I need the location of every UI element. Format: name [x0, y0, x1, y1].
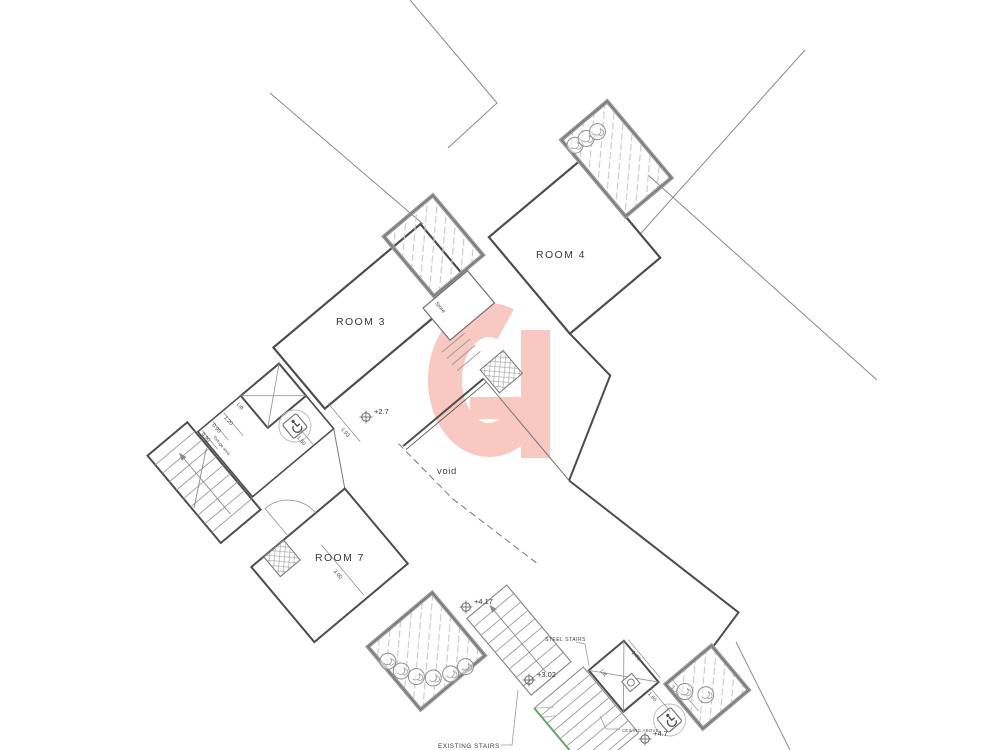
g-logo-stem [521, 330, 550, 458]
site-boundary-line [410, 0, 497, 148]
leader-line [501, 690, 518, 745]
room-4-label: ROOM 4 [536, 249, 586, 261]
dim-lift-d2: 1.65 [646, 691, 657, 703]
site-boundary-line [270, 93, 423, 224]
void-label: void [437, 466, 457, 477]
ceiling-above-note: CEILING ABOVE [622, 728, 659, 733]
floor-plan-drawing: Lift Refuge area 0.90 0.90 1.20 1.50 1.9… [0, 0, 1000, 750]
level-stair-top: +4.17 [474, 597, 493, 606]
terrace-lower-left [366, 593, 487, 714]
site-boundary-line [648, 175, 877, 380]
steel-stairs-note: STEEL STAIRS [545, 637, 586, 643]
room-3-label: ROOM 3 [336, 316, 386, 328]
floor-plan-page: Lift Refuge area 0.90 0.90 1.20 1.50 1.9… [0, 0, 1000, 750]
level-marker [460, 601, 473, 614]
service-shaft [480, 351, 522, 393]
leader-line [576, 642, 589, 666]
existing-stairs-note: EXISTING STAIRS [438, 743, 500, 750]
level-stair-mid: +3.02 [537, 670, 556, 679]
g-logo-crossbar [470, 397, 530, 419]
room-7-label: ROOM 7 [315, 552, 365, 564]
east-wall [569, 452, 745, 649]
level-marker [360, 411, 373, 424]
level-landing: +2.7 [374, 407, 389, 416]
level-marker [639, 733, 652, 746]
